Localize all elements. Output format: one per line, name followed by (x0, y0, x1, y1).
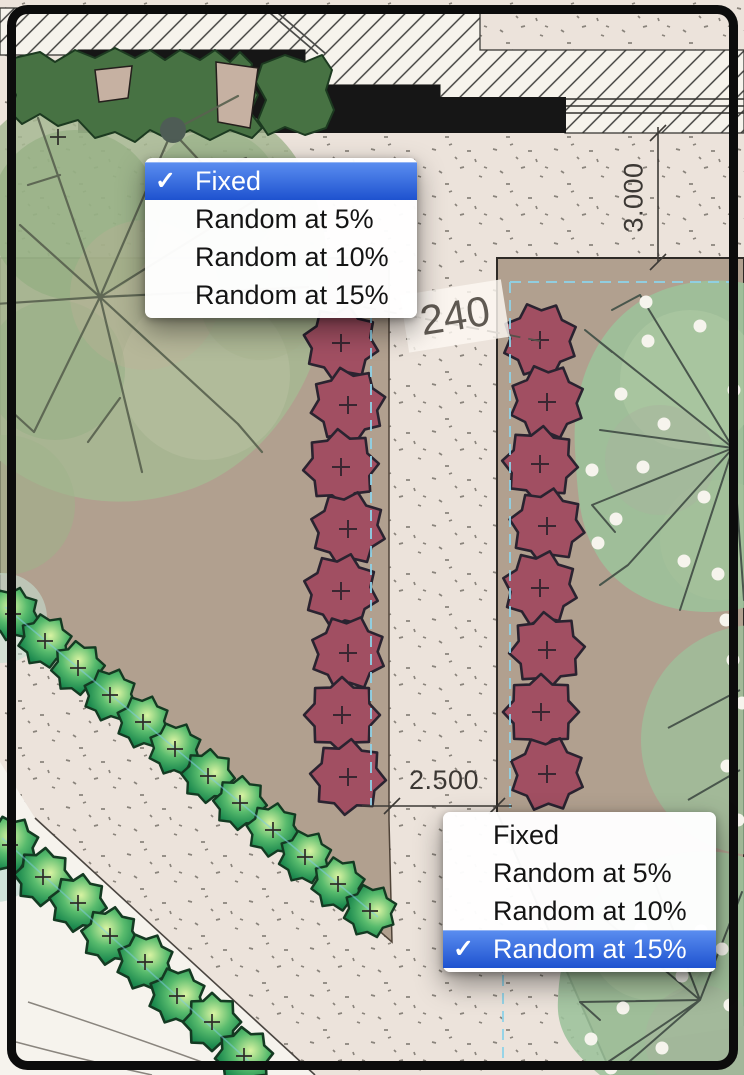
horizontal-dimension-label: 2.500 (384, 765, 504, 796)
menu-item-random-10[interactable]: Random at 10% (145, 238, 417, 276)
spacing-context-menu-top: ✓ Fixed Random at 5% Random at 10% Rando… (145, 158, 417, 318)
menu-item-label: Random at 15% (195, 276, 389, 314)
menu-item-fixed[interactable]: Fixed (443, 816, 716, 854)
menu-item-label: Fixed (493, 816, 559, 854)
menu-item-random-5[interactable]: Random at 5% (145, 200, 417, 238)
menu-item-random-15[interactable]: ✓ Random at 15% (443, 930, 716, 968)
menu-item-label: Random at 5% (493, 854, 672, 892)
menu-item-label: Random at 10% (493, 892, 687, 930)
menu-item-fixed[interactable]: ✓ Fixed (145, 162, 417, 200)
plan-canvas[interactable]: 3.000 2.500 240 ✓ Fixed Random at 5% Ran… (0, 0, 744, 1075)
tree-trunk-dot (160, 117, 186, 143)
check-icon: ✓ (453, 930, 493, 968)
check-icon: ✓ (155, 162, 195, 200)
menu-item-label: Random at 5% (195, 200, 374, 238)
menu-item-random-15[interactable]: Random at 15% (145, 276, 417, 314)
menu-item-label: Random at 15% (493, 930, 687, 968)
spacing-context-menu-bottom: Fixed Random at 5% Random at 10% ✓ Rando… (443, 812, 716, 972)
menu-item-label: Fixed (195, 162, 261, 200)
menu-item-random-10[interactable]: Random at 10% (443, 892, 716, 930)
vertical-dimension-label: 3.000 (619, 152, 650, 244)
menu-item-label: Random at 10% (195, 238, 389, 276)
menu-item-random-5[interactable]: Random at 5% (443, 854, 716, 892)
